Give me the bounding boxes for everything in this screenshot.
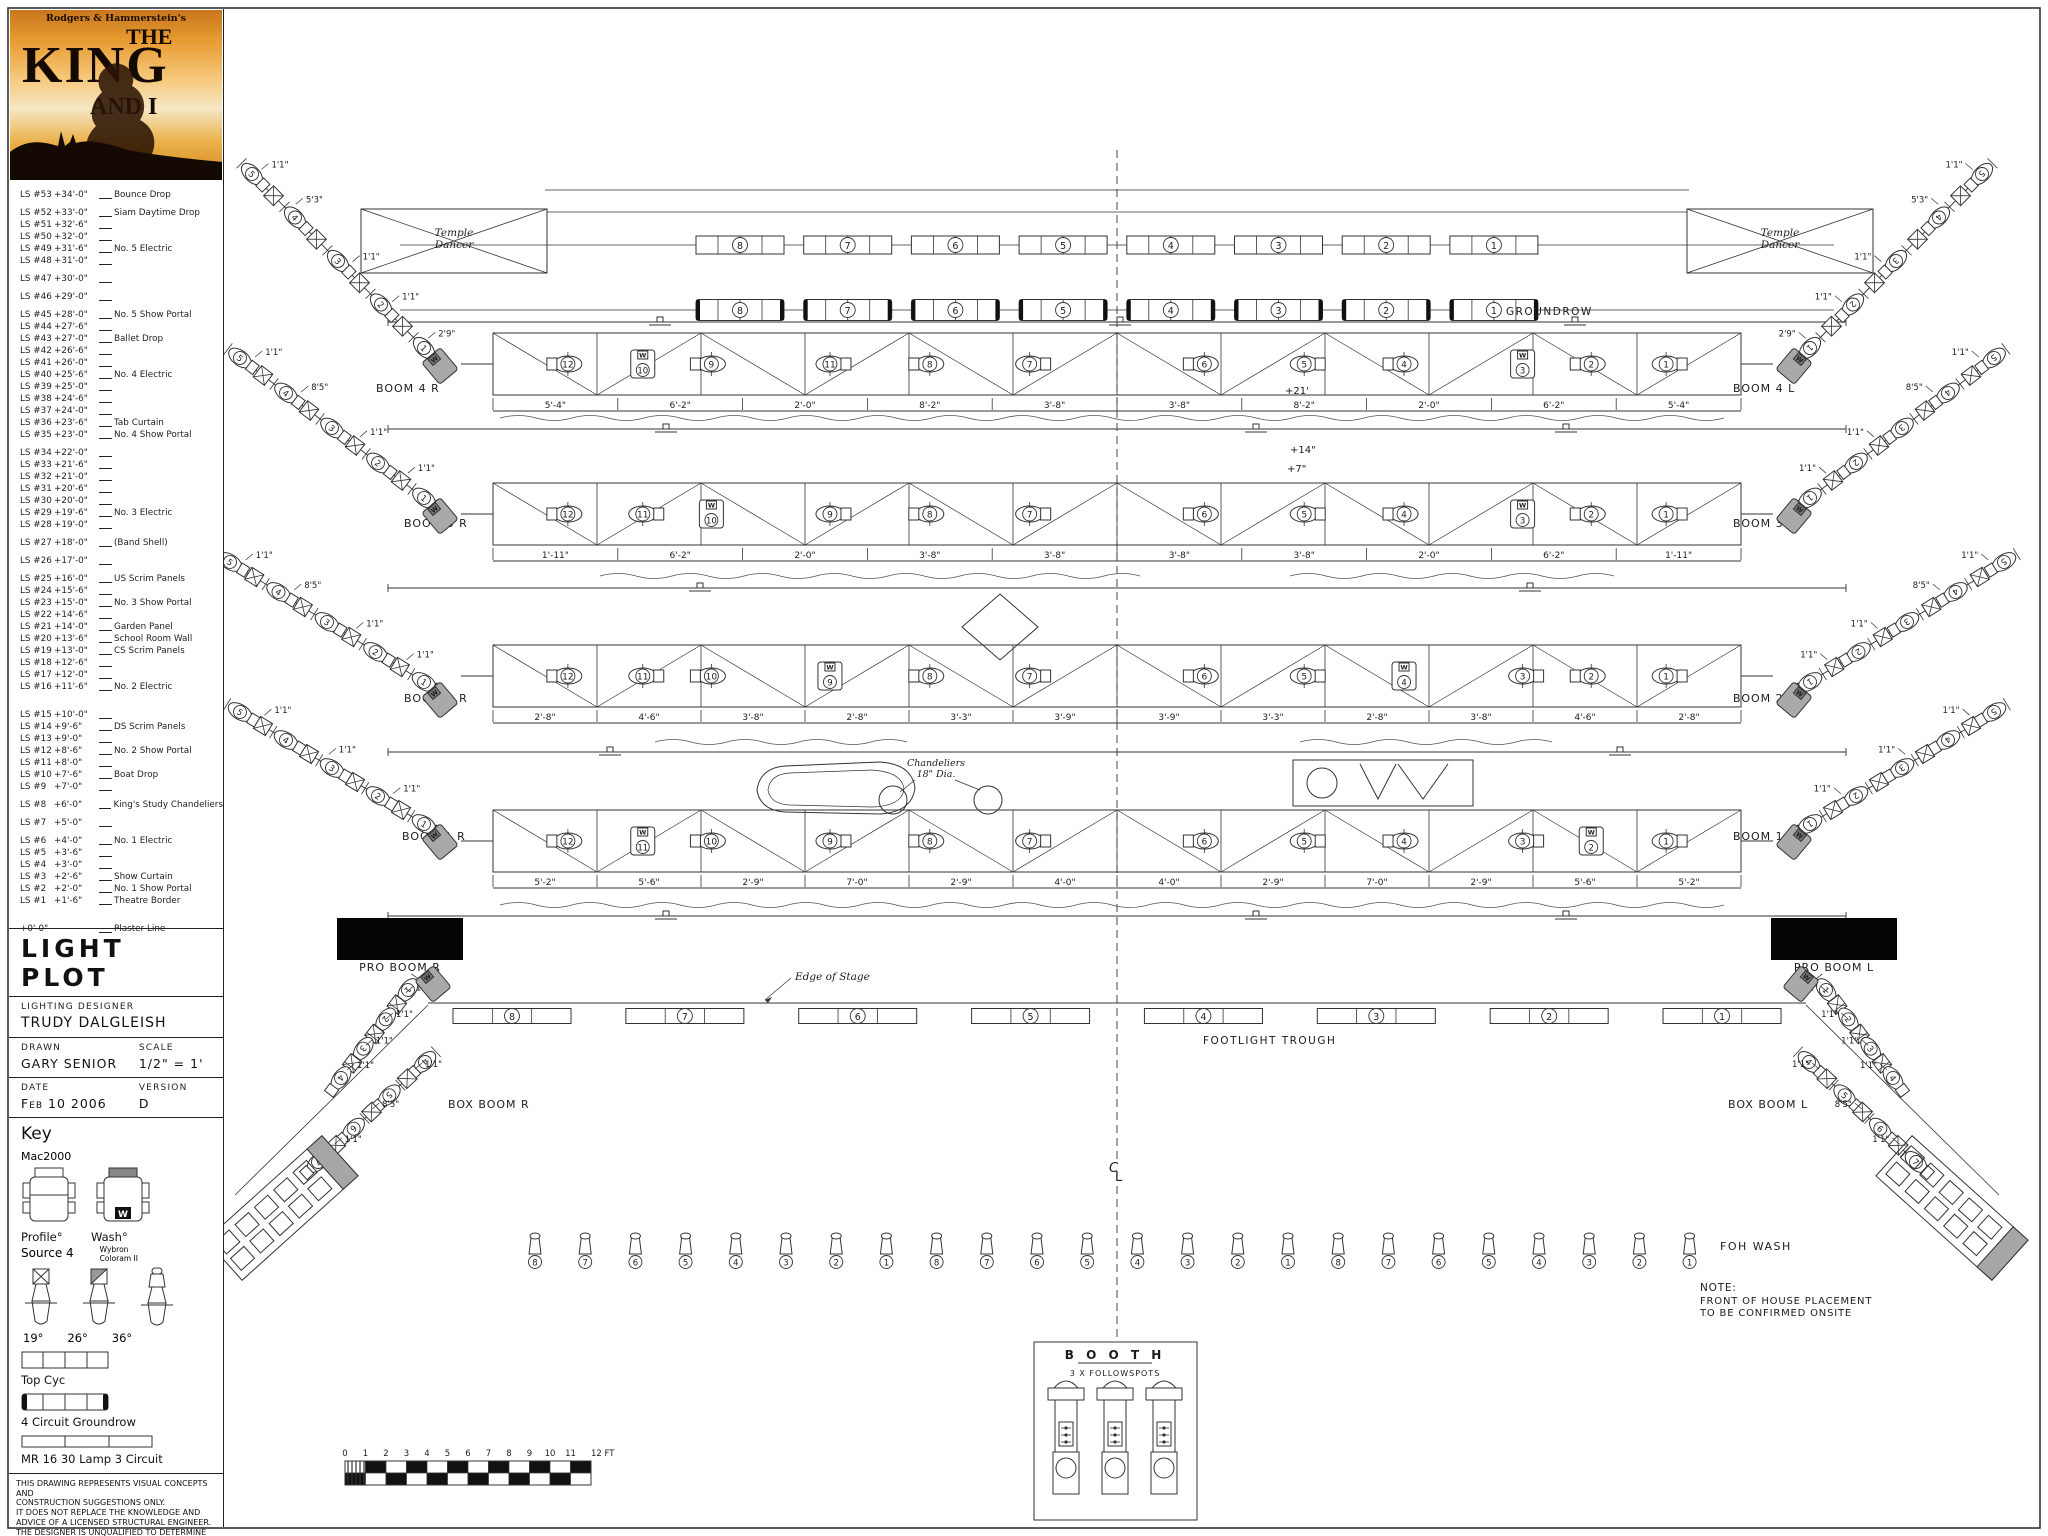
svg-text:5: 5 [1028,1012,1034,1023]
scale-bar: 0123456789101112 FT [342,1449,615,1485]
foh-wash-fixture: 8 [529,1233,542,1269]
svg-text:1'1": 1'1" [403,785,420,795]
svg-text:3'-8": 3'-8" [1044,401,1065,411]
svg-text:1'1": 1'1" [345,1135,362,1145]
unit-number: 6 [948,238,963,253]
lineset-row: LS #29+19'-6"No. 3 Electric [9,506,223,518]
svg-text:Temple: Temple [435,227,474,239]
foh-wash-fixture: 4 [1131,1233,1144,1269]
plot-drawing: CLTempleDancerTempleDancer87654321876543… [0,0,2048,1536]
unit-number: 4 [1196,1009,1211,1024]
svg-text:W: W [826,664,833,672]
svg-text:6: 6 [855,1012,861,1023]
groundrow-strip: 4 [1127,300,1215,321]
groundrow-strip: 7 [804,300,892,321]
s4-fixture-icon: 5 [223,698,261,729]
footlight-strip: 2 [1490,1009,1608,1024]
lineset-row: LS #30+20'-0" [9,494,223,506]
svg-text:3: 3 [1520,673,1526,683]
top-cyc-icon [21,1351,111,1371]
lineset-row: LS #25+16'-0"US Scrim Panels [9,572,223,584]
s4-fixture-icon: 8 [909,502,944,526]
svg-text:4'-6": 4'-6" [1574,713,1595,723]
unit-number: 1 [1659,357,1673,371]
svg-text:1'1": 1'1" [1952,348,1969,358]
foh-wash-fixture: 1 [880,1233,893,1269]
svg-text:6'-2": 6'-2" [1543,401,1564,411]
foh-wash-fixture: 2 [1633,1233,1646,1269]
unit-number: 4 [1398,676,1411,689]
lineset-row: LS #28+19'-0" [9,518,223,530]
pipe-support-icon [689,583,711,591]
s4-fixture-icon: 5 [224,343,261,376]
s4-fixture-icon: 3 [310,608,348,639]
s4-fixture-icon: 7 [1016,352,1051,376]
boom-chain-l2: 543211'1"8'5"1'1"1'1"W [1776,548,2021,719]
followspot-icon [1146,1381,1182,1494]
cyc-strip: 3 [1235,236,1323,254]
footlight-strip: 3 [1317,1009,1435,1024]
s4-fixture-icon: 12 [547,352,582,376]
unit-number: 11 [823,357,837,371]
s4-fixture-icon: 4 [1383,829,1418,853]
unit-number: 1 [1659,669,1673,683]
foh-wash-fixture: 6 [629,1233,642,1269]
svg-text:2'-8": 2'-8" [846,713,867,723]
unit-number: 1 [1282,1256,1295,1269]
foh-wash-fixture: 5 [679,1233,692,1269]
version-label: Version [139,1083,223,1093]
s4-fixture-icon: 12 [547,664,582,688]
svg-text:8: 8 [934,1258,939,1268]
unit-number: 5 [1297,357,1311,371]
foh-wash-fixture: 4 [1533,1233,1546,1269]
svg-text:W: W [708,502,715,510]
pipe-support-icon [655,424,677,432]
lineset-row: LS #50+32'-0" [9,230,223,242]
unit-number: 4 [1163,303,1178,318]
mac2000-icon: W11 [631,827,655,855]
unit-number: 12 [561,669,575,683]
unit-number: 1 [1715,1009,1730,1024]
svg-text:1'1": 1'1" [1943,706,1960,716]
svg-text:11: 11 [637,673,648,683]
pipe-support-icon [1519,583,1541,591]
cyc-strip: 5 [1019,236,1107,254]
s4-fixture-icon: 6 [1183,664,1218,688]
svg-text:1: 1 [1663,361,1669,371]
svg-text:1: 1 [1285,1258,1290,1268]
svg-text:3'-8": 3'-8" [1169,401,1190,411]
s4-fixture-icon: 9 [816,829,851,853]
scale-value: 1/2" = 1' [139,1056,223,1071]
center-line: CL [1109,150,1123,1342]
unit-number: 8 [733,238,748,253]
svg-text:1'1": 1'1" [366,619,383,629]
unit-number: 9 [823,507,837,521]
s4-fixture-icon: 5 [1290,664,1325,688]
footlight-strip: 5 [972,1009,1090,1024]
groundrow-strip: 2 [1342,300,1430,321]
unit-number: 4 [729,1256,742,1269]
unit-number: 12 [561,834,575,848]
lineset-row: LS #7+5'-0" [9,816,223,828]
svg-text:8'5": 8'5" [304,581,321,591]
s4-fixture-icon: 5 [1983,548,2021,579]
unit-number: 4 [1397,507,1411,521]
svg-text:+21': +21' [1285,386,1309,397]
unit-number: 7 [1382,1256,1395,1269]
unit-number: 2 [1584,669,1598,683]
s4-fixture-icon: 3 [315,754,353,785]
svg-text:1'1": 1'1" [1847,428,1864,438]
unit-number: 12 [561,507,575,521]
top-cyc-label: Top Cyc [21,1373,223,1387]
lineset-row: LS #21+14'-0"Garden Panel [9,620,223,632]
svg-text:Temple: Temple [1761,227,1800,239]
svg-text:W: W [1519,352,1526,360]
unit-number: 7 [1023,357,1037,371]
unit-number: 8 [923,834,937,848]
svg-text:6: 6 [952,306,958,317]
svg-text:Edge of Stage: Edge of Stage [794,971,870,983]
unit-number: 1 [1659,834,1673,848]
s4-fixture-icon: 2 [361,782,399,813]
unit-number: 10 [636,364,649,377]
svg-text:3: 3 [1520,516,1525,526]
svg-text:1'1": 1'1" [1792,1060,1809,1070]
svg-text:3'-3": 3'-3" [950,713,971,723]
svg-text:2'-9": 2'-9" [1262,878,1283,888]
cyc-strip: 2 [1342,236,1430,254]
s4-fixture-icon: 5 [1963,158,1998,193]
mac2000-label: Mac2000 [21,1150,223,1163]
unit-number: 10 [704,669,718,683]
groundrow-icon [21,1393,111,1413]
svg-text:3: 3 [1275,241,1281,252]
svg-text:4: 4 [1168,306,1174,317]
drawn-name: GARY SENIOR [21,1056,139,1071]
svg-text:8: 8 [927,673,933,683]
mac2000-icon: W3 [1511,500,1535,528]
foh-note: NOTE:FRONT OF HOUSE PLACEMENTTO BE CONFI… [1699,1282,1872,1319]
unit-number: 2 [1542,1009,1557,1024]
svg-text:12: 12 [562,511,573,521]
svg-text:4: 4 [733,1258,738,1268]
lineset-row: LS #49+31'-6"No. 5 Electric [9,242,223,254]
angle-26: 26° [67,1331,87,1345]
svg-text:W: W [639,352,646,360]
svg-text:6: 6 [1034,1258,1039,1268]
svg-text:1'-11": 1'-11" [542,551,569,561]
lineset-row: LS #10+7'-6"Boat Drop [9,768,223,780]
lineset-row: LS #16+11'-6"No. 2 Electric [9,680,223,692]
svg-text:6: 6 [1436,1258,1441,1268]
s4-fixture-icon: 2 [1836,448,1873,481]
unit-number: 3 [1271,303,1286,318]
unit-number: 5 [1482,1256,1495,1269]
svg-text:4: 4 [1401,838,1407,848]
svg-text:BOOM 4 R: BOOM 4 R [376,382,440,395]
sidebar: Rodgers & Hammerstein's THE KING AND I L… [9,9,224,1527]
svg-text:2'-0": 2'-0" [1418,401,1439,411]
s4-fixture-icon: 2 [1835,782,1873,813]
s4-fixture-icon: 3 [316,413,353,446]
svg-text:2'-8": 2'-8" [1678,713,1699,723]
svg-text:5: 5 [1486,1258,1491,1268]
unit-number: 10 [704,834,718,848]
unit-number: 4 [1533,1256,1546,1269]
electric-truss-2: 121110W98765W43212'-8"4'-6"3'-8"2'-8"3'-… [461,645,1773,723]
s4-fixture-icon: 5 [1973,698,2011,729]
date-value: Feb 10 2006 [21,1096,139,1111]
lineset-row: LS #33+21'-6" [9,458,223,470]
unit-number: 2 [1379,238,1394,253]
svg-text:1'1": 1'1" [1872,1135,1889,1145]
diamond-panel [962,594,1038,660]
groundrow-key-label: 4 Circuit Groundrow [21,1415,223,1429]
lineset-row: LS #24+15'-6" [9,584,223,596]
lineset-row: LS #20+13'-6"School Room Wall [9,632,223,644]
wybron-label: WybronColoram II [100,1246,138,1263]
mac2000-icon: W3 [1511,350,1535,378]
foh-wash-fixture: 5 [1081,1233,1094,1269]
svg-text:11: 11 [637,843,648,853]
boat-drop-outline [757,762,915,814]
s4-fixture-icon: 11 [816,352,851,376]
s4-fixture-icon: 3 [1509,829,1544,853]
foh-wash-fixture: 3 [1583,1233,1596,1269]
svg-text:2'-9": 2'-9" [742,878,763,888]
svg-text:4'-0": 4'-0" [1158,878,1179,888]
cyc-strip: 7 [804,236,892,254]
svg-text:2'-9": 2'-9" [950,878,971,888]
unit-number: 3 [1369,1009,1384,1024]
svg-text:5: 5 [1301,361,1307,371]
unit-number: 6 [629,1256,642,1269]
svg-text:W: W [1519,502,1526,510]
svg-text:12: 12 [562,361,573,371]
svg-text:3'-8": 3'-8" [919,551,940,561]
s4-fixture-icon: 4 [1928,378,1965,411]
angle-19: 19° [23,1331,43,1345]
mac2000-icon: W9 [818,662,842,690]
unit-number: 6 [1031,1256,1044,1269]
s4-fixture-icon: 7 [1016,829,1051,853]
svg-text:2: 2 [1383,241,1389,252]
s4-fixture-icon: 1 [1652,829,1687,853]
foh-wash-fixture: 2 [830,1233,843,1269]
svg-text:3: 3 [1275,306,1281,317]
svg-text:4'-6": 4'-6" [638,713,659,723]
svg-text:6'-2": 6'-2" [670,551,691,561]
lineset-row: LS #15+10'-0" [9,708,223,720]
svg-text:8'5": 8'5" [1906,383,1923,393]
svg-text:7: 7 [1027,673,1033,683]
svg-text:7: 7 [845,306,851,317]
date-label: Date [21,1083,139,1093]
s4-fixture-icon: 10 [690,664,725,688]
svg-text:1'1": 1'1" [363,253,380,263]
svg-text:3: 3 [1520,366,1525,376]
svg-text:1'1": 1'1" [417,651,434,661]
lineset-row: LS #42+26'-6" [9,344,223,356]
pipe-support-icon [1609,747,1631,755]
unit-number: 3 [1181,1256,1194,1269]
svg-text:7: 7 [1386,1258,1391,1268]
pipe-support-icon [1245,424,1267,432]
unit-number: 7 [1023,669,1037,683]
lineset-row: LS #38+24'-6" [9,392,223,404]
svg-text:12: 12 [562,673,573,683]
foh-wash-fixture: 7 [579,1233,592,1269]
svg-text:1: 1 [1663,673,1669,683]
svg-text:BOX BOOM R: BOX BOOM R [448,1098,530,1111]
lineset-row: LS #9+7'-0" [9,780,223,792]
profile-label: Profile° [21,1230,73,1244]
svg-text:BOX BOOM L: BOX BOOM L [1728,1098,1808,1111]
unit-number: 6 [1197,507,1211,521]
dimension-row: 5'-4"6'-2"2'-0"8'-2"3'-8"3'-8"8'-2"2'-0"… [493,398,1741,411]
s4-fixture-icon: 3 [1509,664,1544,688]
lineset-row: LS #27+18'-0"(Band Shell) [9,536,223,548]
unit-number: 7 [1023,834,1037,848]
unit-number: 7 [1023,507,1037,521]
unit-number: 1 [880,1256,893,1269]
svg-text:4: 4 [424,1449,429,1459]
svg-text:2: 2 [1588,511,1594,521]
groundrow-strip: 3 [1235,300,1323,321]
svg-text:4: 4 [1168,241,1174,252]
svg-text:6: 6 [1201,361,1207,371]
source4-36-icon [137,1267,177,1329]
svg-text:12: 12 [562,838,573,848]
lineset-row: LS #31+20'-6" [9,482,223,494]
svg-text:2: 2 [383,1449,388,1459]
svg-text:2: 2 [833,1258,838,1268]
unit-number: 3 [1583,1256,1596,1269]
s4-fixture-icon: 3 [322,245,357,280]
foh-wash-fixture: 8 [930,1233,943,1269]
s4-fixture-icon: 4 [270,378,307,411]
footlight-strip: 1 [1663,1009,1781,1024]
footlight-strip: 4 [1144,1009,1262,1024]
lineset-row: LS #35+23'-0"No. 4 Show Portal [9,428,223,440]
s4-fixture-icon: 2 [1570,664,1605,688]
svg-text:6'-2": 6'-2" [1543,551,1564,561]
unit-number: 5 [679,1256,692,1269]
lineset-row: LS #39+25'-0" [9,380,223,392]
pipe-support-icon [649,317,671,325]
svg-text:8: 8 [506,1449,511,1459]
unit-number: 11 [636,669,650,683]
designer-label: Lighting Designer [21,1002,223,1012]
s4-fixture-icon: 2 [1838,638,1876,669]
s4-fixture-icon: 4 [1920,202,1955,237]
foh-wash-fixture: 5 [1482,1233,1495,1269]
unit-number: 2 [1584,357,1598,371]
foh-wash-fixture: 1 [1282,1233,1295,1269]
unit-number: 7 [840,303,855,318]
s4-fixture-icon: 5 [1290,502,1325,526]
unit-number: 9 [823,676,836,689]
svg-text:W: W [1400,664,1407,672]
unit-number: 7 [980,1256,993,1269]
unit-number: 5 [1023,1009,1038,1024]
groundrow-strip: 6 [911,300,999,321]
svg-text:2: 2 [1546,1012,1552,1023]
box-boom-l-bank [1876,1136,2028,1281]
svg-text:+7": +7" [1287,464,1306,475]
s4-fixture-icon: 5 [236,158,271,193]
svg-text:9: 9 [827,678,832,688]
unit-number: 7 [579,1256,592,1269]
lineset-row: LS #3+2'-6"Show Curtain [9,870,223,882]
s4-fixture-icon: 3 [1881,754,1919,785]
foh-wash-fixture: 7 [1382,1233,1395,1269]
svg-text:2'-0": 2'-0" [794,401,815,411]
box-boom-r-bank [206,1136,358,1281]
s4-fixture-icon: 8 [909,352,944,376]
s4-fixture-icon: 4 [269,726,307,757]
svg-text:8: 8 [737,306,743,317]
s4-fixture-icon: 9 [690,352,725,376]
svg-text:5: 5 [1301,511,1307,521]
unit-number: 8 [529,1256,542,1269]
svg-text:1'1": 1'1" [402,293,419,303]
footlight-strip: 8 [453,1009,571,1024]
svg-text:1'1": 1'1" [1854,253,1871,263]
angle-36: 36° [112,1331,132,1345]
svg-text:1'1": 1'1" [376,1036,393,1046]
lineset-schedule: LS #53+34'-0"Bounce DropLS #52+33'-0"Sia… [9,184,223,928]
svg-text:8: 8 [927,361,933,371]
svg-text:1'1": 1'1" [271,160,288,170]
source4-26-icon [79,1267,119,1329]
svg-text:8: 8 [737,241,743,252]
svg-text:5'-4": 5'-4" [1668,401,1689,411]
svg-text:0: 0 [342,1449,347,1459]
s4-fixture-icon: 4 [1383,502,1418,526]
svg-text:1'1": 1'1" [1841,1036,1858,1046]
svg-text:7: 7 [682,1012,688,1023]
svg-text:2'9": 2'9" [438,329,455,339]
lineset-row: LS #5+3'-6" [9,846,223,858]
s4-fixture-icon: 1 [1652,352,1687,376]
footlight-strip: 7 [626,1009,744,1024]
svg-text:7: 7 [845,241,851,252]
key-legend: Key Mac2000 [9,1118,223,1466]
unit-number: 6 [1197,834,1211,848]
s4-fixture-icon: 4 [279,202,314,237]
cyc-strip: 6 [911,236,999,254]
lineset-row: LS #14+9'-6"DS Scrim Panels [9,720,223,732]
foh-wash-fixture: 1 [1683,1233,1696,1269]
lineset-row: LS #41+26'-0" [9,356,223,368]
svg-text:W: W [118,1210,128,1220]
svg-text:2: 2 [1383,306,1389,317]
s4-fixture-icon: 8 [909,664,944,688]
lineset-row: LS #12+8'-6"No. 2 Show Portal [9,744,223,756]
svg-text:2: 2 [1589,843,1594,853]
lineset-row: LS #44+27'-6" [9,320,223,332]
unit-number: 6 [948,303,963,318]
lineset-row: LS #46+29'-0" [9,290,223,302]
svg-text:8: 8 [1335,1258,1340,1268]
lineset-row: LS #4+3'-0" [9,858,223,870]
s4-fixture-icon: 10 [690,829,725,853]
svg-text:5: 5 [1301,838,1307,848]
